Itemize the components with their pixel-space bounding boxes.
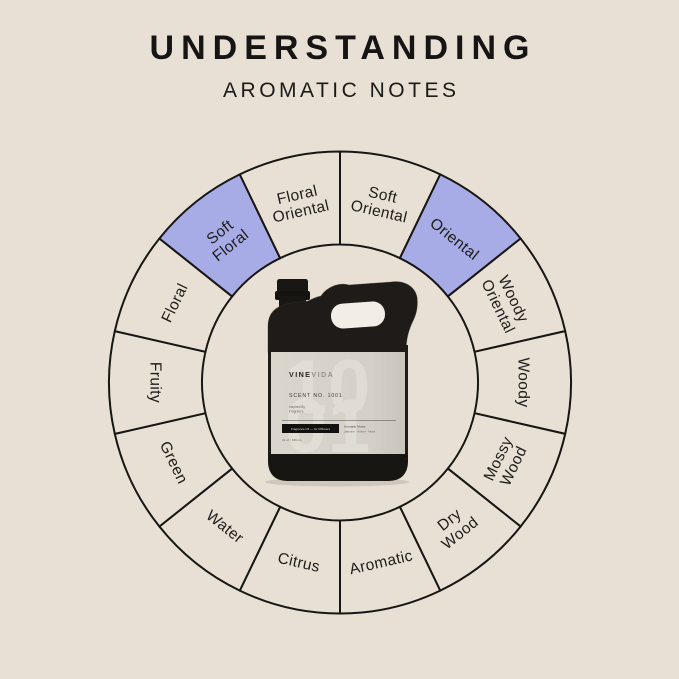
label-info-line-1: Inspired By <box>289 405 305 409</box>
page-title: UNDERSTANDING <box>0 29 679 68</box>
label-volume-line: 32 oz / 946 mL <box>282 438 302 442</box>
product-bottle: 10 01 VINEVIDA SCENT NO. 1001 Inspired B… <box>265 279 417 487</box>
label-info-line-2: Fragrance <box>289 410 304 414</box>
wheel-segment-label-fruity: Fruity <box>147 362 164 403</box>
brand-wordmark-bold: VINE <box>289 370 311 379</box>
scent-number-line: SCENT NO. 1001 <box>289 393 343 399</box>
label-notes-line: Jasmine · Amber · Musk <box>344 430 376 434</box>
page-subtitle: AROMATIC NOTES <box>0 79 679 103</box>
bottle-handle-hole <box>330 301 386 330</box>
label-badge-text: Fragrance Oil — for Diffusers <box>291 427 330 431</box>
bottle-base <box>268 454 408 481</box>
brand-wordmark-light: VIDA <box>311 370 334 379</box>
infographic-canvas: UNDERSTANDING AROMATIC NOTES SoftOrienta… <box>0 0 679 679</box>
brand-wordmark: VINEVIDA <box>289 370 334 379</box>
wheel-segment-label-woody: Woody <box>515 358 532 408</box>
label-notes-heading: Aromatic Notes: <box>344 425 366 429</box>
header: UNDERSTANDING AROMATIC NOTES <box>0 29 679 103</box>
